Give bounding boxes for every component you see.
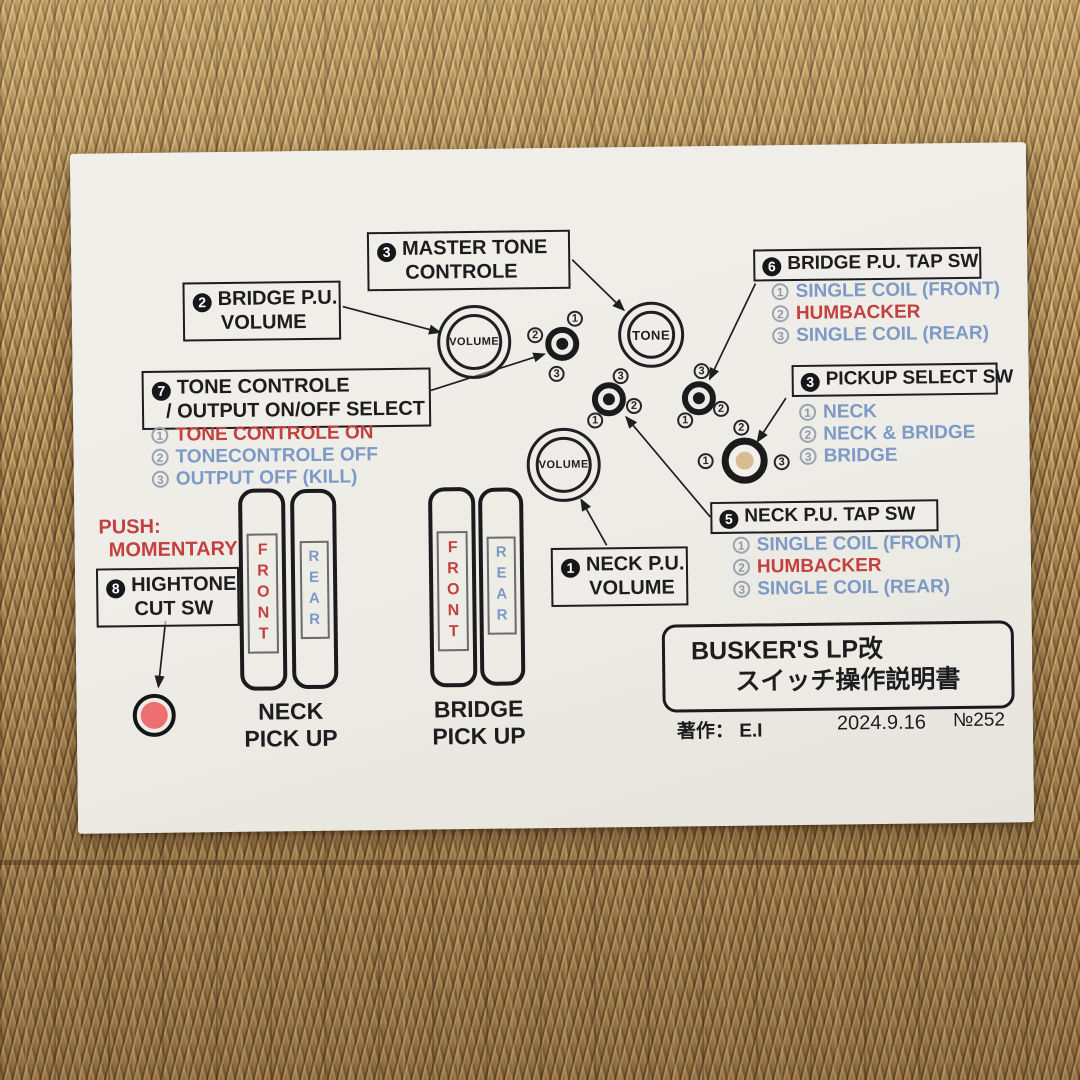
callout-tone-controle-line1: TONE CONTROLE [177,374,350,398]
push-note-line1: PUSH: [98,515,237,540]
callout-bridge-volume-line1: BRIDGE P.U. [218,287,338,310]
neck-pickup-label-line2: PICK UP [225,724,357,753]
circled-3: 3 [800,448,817,465]
marker-1: 1 [587,412,603,428]
circled-1: 1 [799,404,816,421]
credit-date: 2024.9.16 [837,711,926,735]
neck-volume-knob-label: VOLUME [535,437,592,494]
bridge-front-label: FRONT [444,539,461,644]
credit-author: 著作： E.I [677,715,763,743]
badge-3: 3 [377,243,396,262]
callout-hightone-line1: HIGHTONE [131,573,236,596]
circled-3: 3 [772,327,789,344]
tone-controle-switch [545,327,579,361]
neck-pickup-rear-coil: REAR [290,489,338,690]
hightone-cut-button [132,694,176,738]
tatami-seam [0,860,1080,865]
callout-neck-volume-line2: VOLUME [561,576,678,600]
circled-2: 2 [772,305,789,322]
callout-bridge-tap: 6BRIDGE P.U. TAP SW [753,247,981,281]
option-output-off: OUTPUT OFF (KILL) [176,466,358,490]
option-neck-humbacker: HUMBACKER [757,554,882,578]
marker-2: 2 [713,401,729,417]
badge-3: 3 [801,372,820,391]
option-tone-on: TONE CONTROLE ON [175,422,373,446]
marker-2: 2 [626,398,642,414]
marker-2: 2 [527,327,543,343]
marker-3: 3 [693,363,709,379]
circled-3: 3 [733,581,750,598]
title-line2: スイッチ操作説明書 [691,663,1011,698]
credit-number: №252 [953,709,1005,732]
instruction-sheet: 3MASTER TONE CONTROLE 2BRIDGE P.U. VOLUM… [70,142,1034,834]
bridge-pickup-label-line2: PICK UP [413,722,545,751]
badge-5: 5 [719,509,738,528]
callout-master-tone: 3MASTER TONE CONTROLE [367,230,571,291]
option-tone-off: TONECONTROLE OFF [175,444,378,468]
bridge-pickup-front-coil: FRONT [428,487,477,688]
option-bridge-single-front: SINGLE COIL (FRONT) [795,278,1000,302]
callout-neck-tap: 5NECK P.U. TAP SW [710,499,938,533]
tone-controle-options: 1TONE CONTROLE ON 2TONECONTROLE OFF 3OUT… [151,422,378,491]
neck-volume-knob: VOLUME [526,427,601,502]
title-line1: BUSKER'S LP改 [691,632,1011,667]
circled-3: 3 [152,471,169,488]
callout-neck-tap-line: NECK P.U. TAP SW [744,504,915,527]
master-tone-knob-label: TONE [627,310,676,359]
push-note-line2: MOMENTARY [99,538,238,563]
callout-pickup-select: 3PICKUP SELECT SW [792,363,998,397]
circled-1: 1 [733,537,750,554]
option-bridge-humbacker: HUMBACKER [796,301,921,325]
neck-rear-label: REAR [306,548,322,632]
bridge-pickup-label-line1: BRIDGE [413,695,545,724]
marker-3: 3 [774,454,790,470]
marker-1: 1 [567,311,583,327]
option-neck-single-rear: SINGLE COIL (REAR) [757,576,950,600]
photo-of-instruction-sheet: { "diagram": { "boxes": { "master_tone":… [0,0,1080,1080]
callout-hightone: 8HIGHTONE CUT SW [96,567,240,628]
marker-1: 1 [698,453,714,469]
marker-2: 2 [733,420,749,436]
pickup-select-options: 1NECK 2NECK & BRIDGE 3BRIDGE [799,400,976,468]
bridge-rear-label: REAR [494,544,510,628]
bridge-tap-options: 1SINGLE COIL (FRONT) 2HUMBACKER 3SINGLE … [771,279,1000,348]
callout-bridge-tap-line: BRIDGE P.U. TAP SW [787,251,978,274]
badge-1: 1 [561,559,580,578]
title-box: BUSKER'S LP改 スイッチ操作説明書 [662,620,1015,712]
callout-tone-controle: 7TONE CONTROLE / OUTPUT ON/OFF SELECT [142,367,432,430]
option-bridge-single-rear: SINGLE COIL (REAR) [796,322,989,346]
callout-neck-volume-line1: NECK P.U. [586,552,685,575]
marker-1: 1 [677,412,693,428]
pickup-select-switch [721,437,768,484]
badge-2: 2 [193,293,212,312]
badge-8: 8 [106,579,125,598]
marker-3: 3 [549,366,565,382]
pickup-select-switch-center [736,452,754,470]
bridge-pickup-label: BRIDGE PICK UP [413,695,546,751]
master-tone-knob: TONE [618,301,685,368]
push-momentary-note: PUSH: MOMENTARY [98,515,237,563]
red-button-cap [141,702,168,729]
option-select-neck-bridge: NECK & BRIDGE [823,421,975,445]
neck-pickup-label: NECK PICK UP [225,697,358,753]
callout-master-tone-line2: CONTROLE [377,260,560,285]
option-select-neck: NECK [823,401,877,424]
callout-master-tone-line1: MASTER TONE [402,236,547,260]
neck-pickup-label-line1: NECK [225,697,357,726]
badge-6: 6 [762,257,781,276]
option-neck-single-front: SINGLE COIL (FRONT) [757,532,962,556]
bridge-tap-switch [682,381,716,415]
neck-tap-switch [592,382,626,416]
neck-tap-options: 1SINGLE COIL (FRONT) 2HUMBACKER 3SINGLE … [733,532,962,601]
callout-pickup-select-line: PICKUP SELECT SW [826,366,1014,389]
callout-bridge-volume-line2: VOLUME [193,311,331,336]
callout-tone-controle-line2: / OUTPUT ON/OFF SELECT [152,398,421,424]
circled-2: 2 [151,449,168,466]
bridge-volume-knob-label: VOLUME [446,314,503,371]
circled-2: 2 [799,426,816,443]
callout-hightone-line2: CUT SW [106,597,229,622]
circled-1: 1 [151,427,168,444]
badge-7: 7 [152,382,171,401]
callout-bridge-volume: 2BRIDGE P.U. VOLUME [182,281,341,342]
callout-neck-volume: 1NECK P.U. VOLUME [551,546,689,607]
marker-3: 3 [613,368,629,384]
neck-pickup-front-coil: FRONT [238,488,287,691]
bridge-volume-knob: VOLUME [437,304,512,379]
bridge-pickup-rear-coil: REAR [478,487,525,686]
circled-1: 1 [772,283,789,300]
option-select-bridge: BRIDGE [823,444,897,467]
circled-2: 2 [733,559,750,576]
neck-front-label: FRONT [254,541,271,646]
